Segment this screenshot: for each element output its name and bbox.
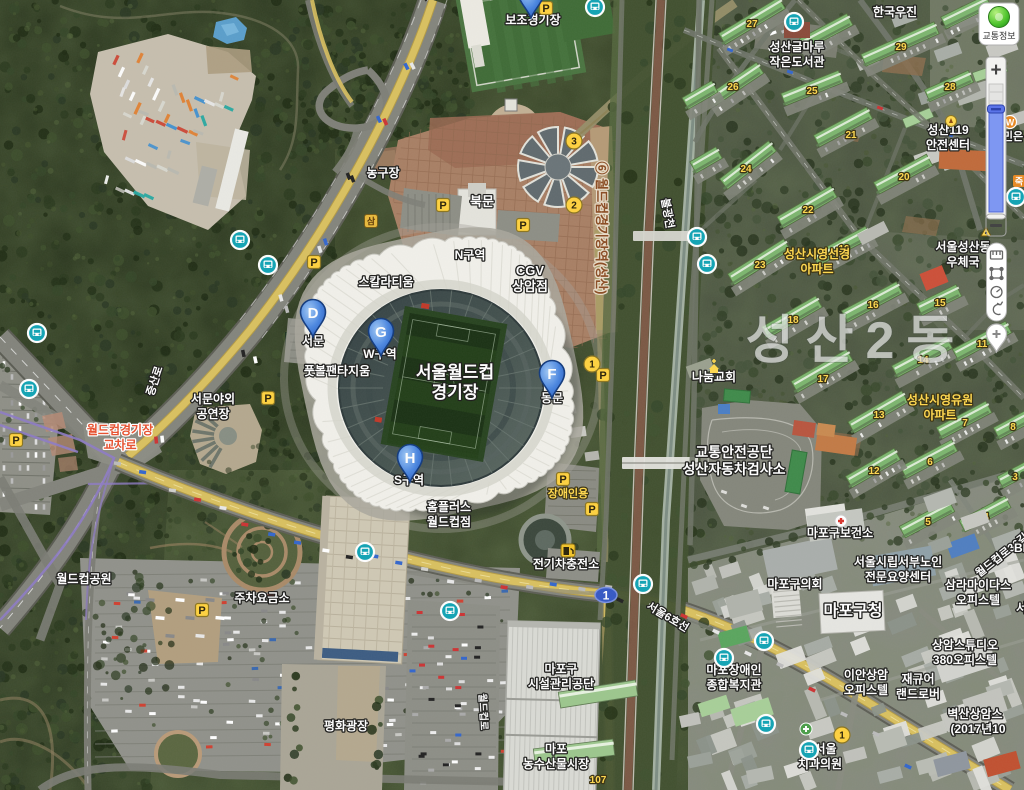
svg-text:+: + bbox=[990, 60, 1001, 81]
svg-text:교통정보: 교통정보 bbox=[982, 31, 1015, 41]
